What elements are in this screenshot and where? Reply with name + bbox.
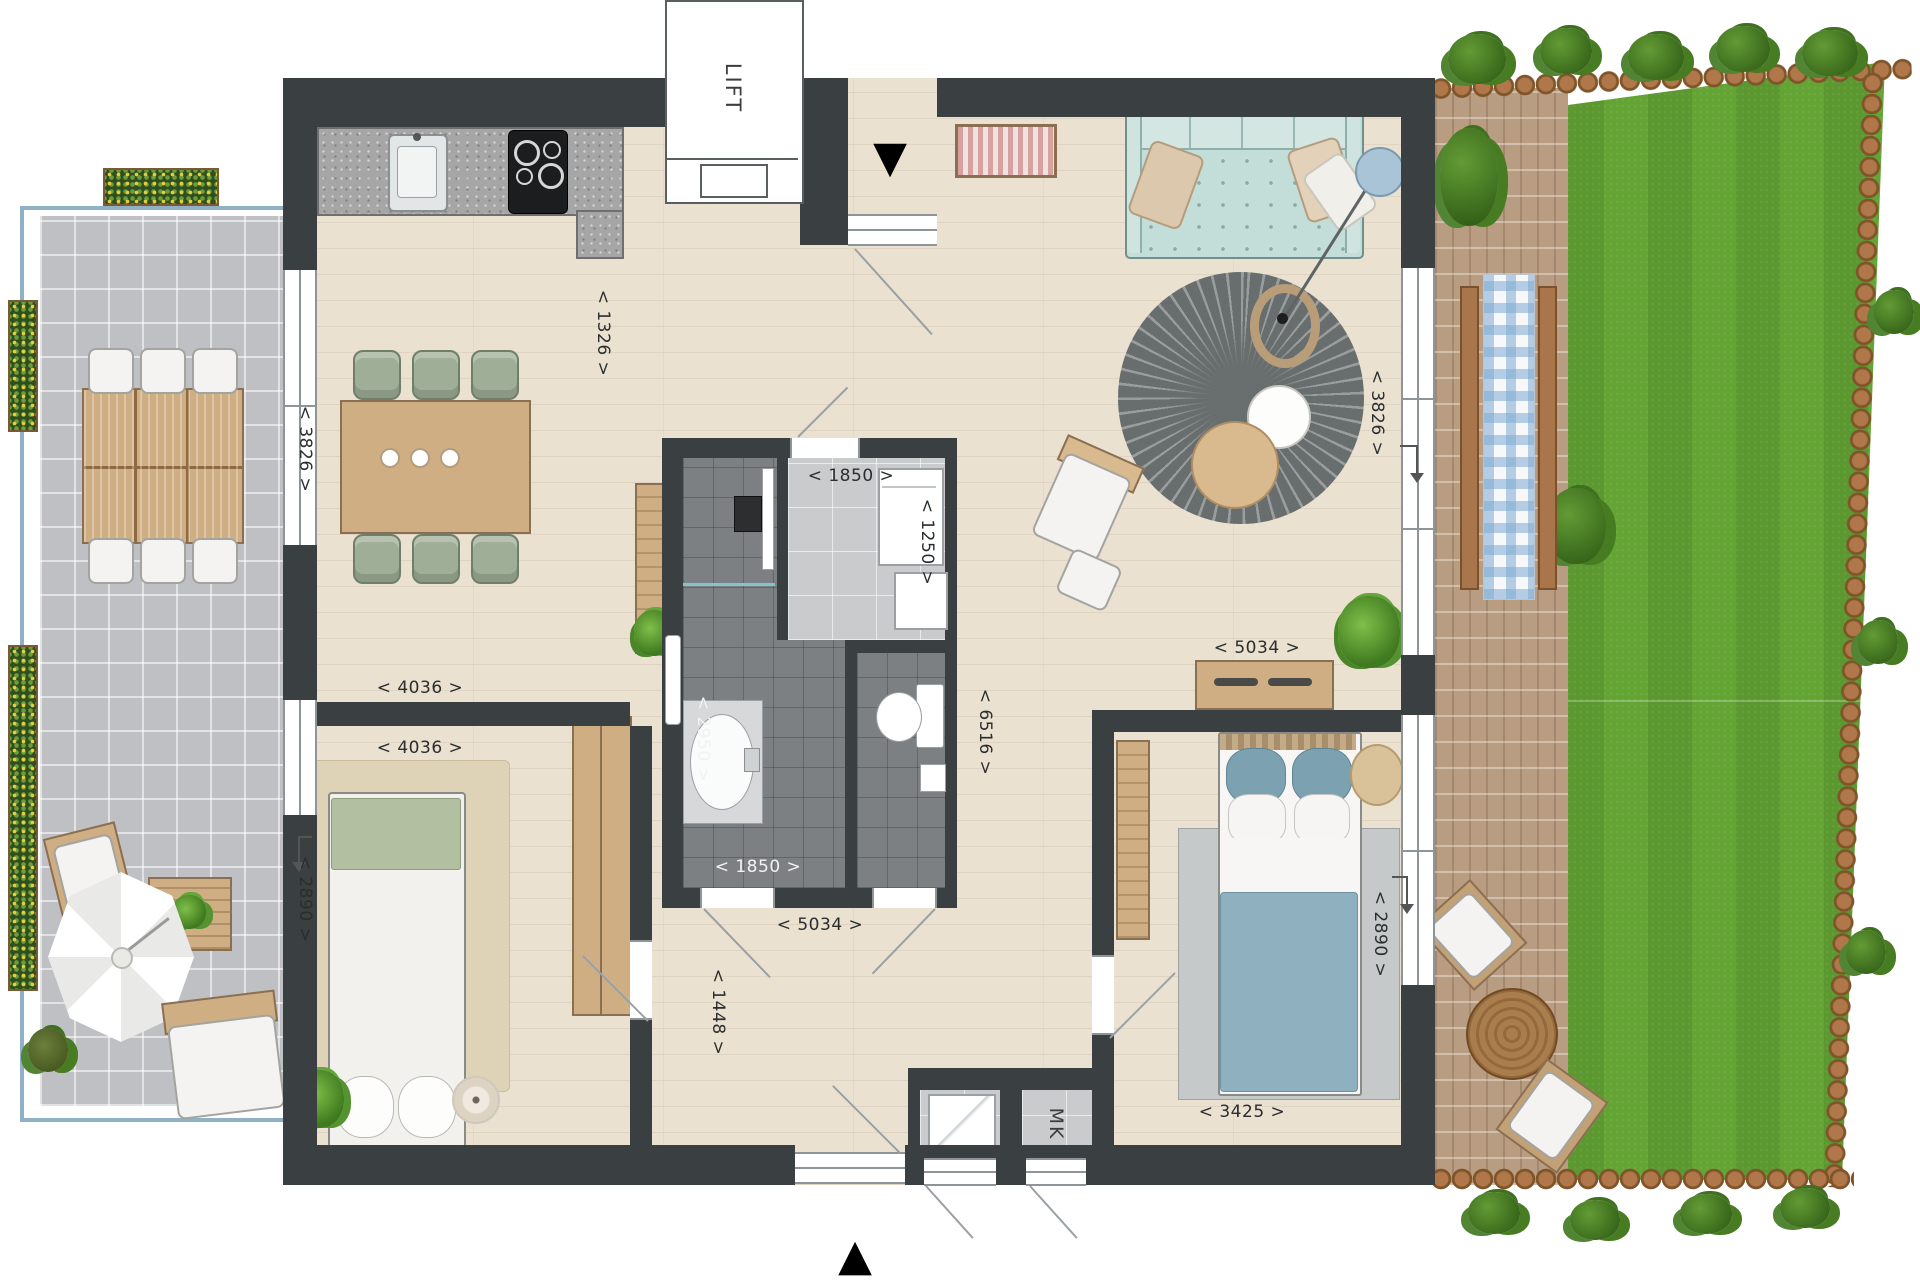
wall-right [1401, 655, 1435, 715]
garden-bush [1858, 620, 1898, 664]
bedroom2-door-opening [1092, 955, 1114, 1035]
door-swing [1029, 1185, 1077, 1238]
garden-bush [1802, 30, 1858, 76]
bed2-duvet [1220, 892, 1358, 1092]
mk-door-sill [1026, 1158, 1086, 1186]
boiler-line [882, 486, 936, 488]
vanity-faucet [744, 748, 760, 772]
access-arrow [1406, 876, 1408, 906]
wall-segment [777, 458, 788, 640]
kitchen-counter [317, 127, 624, 216]
wall-segment [845, 653, 857, 888]
living-plant [1338, 596, 1400, 668]
burner [514, 140, 540, 166]
garden-bush [1468, 1192, 1520, 1234]
kitchen-counter-return [576, 210, 624, 259]
dining-table-top [340, 400, 531, 534]
wall-entry-block [800, 78, 848, 245]
wall-divider-dining-bed1 [300, 702, 630, 726]
bed2-sheet-fold [1220, 838, 1356, 898]
mk-label: MK [1045, 1108, 1067, 1141]
entry-door-threshold-bottom [795, 1152, 905, 1184]
lawn-seam [1568, 700, 1868, 702]
wall-top-living [937, 78, 1435, 117]
dimension-hall-width: < 5034 > [777, 915, 864, 935]
log-border-bottom [1430, 1168, 1854, 1190]
dining-chair [471, 350, 519, 400]
wc-hand-basin [920, 764, 946, 792]
console-radiator [955, 124, 1057, 178]
bedroom2-pouf [1350, 744, 1404, 806]
dimension-bedroom2-height: < 2890 > [1370, 891, 1390, 978]
dining-chair [471, 534, 519, 584]
wc-door-opening [872, 888, 937, 908]
garden-bush [1570, 1200, 1620, 1240]
garden-bush [1448, 34, 1506, 84]
floor-plan: LIFT MK ▼ ▲ < 1326 > < 3826 > < 4036 > <… [0, 0, 1920, 1280]
door-swing [925, 1185, 973, 1238]
burner [516, 168, 533, 185]
shower-head [734, 496, 762, 532]
decor-ring [1250, 284, 1320, 368]
terrace-chair [88, 538, 134, 584]
dining-chair [353, 534, 401, 584]
dining-chair [412, 350, 460, 400]
dimension-living-left: < 3826 > [295, 406, 315, 493]
wall-left [283, 545, 317, 702]
dimension-bedroom2-width: < 5034 > [1214, 638, 1301, 658]
wall-segment [908, 1068, 1100, 1090]
shower-panel [762, 468, 774, 570]
entry-door-threshold-top [848, 214, 937, 246]
picnic-bench-right [1538, 286, 1557, 590]
garden-bush [1780, 1188, 1830, 1228]
terrace-chair [88, 348, 134, 394]
wall-bed2-left [1092, 1035, 1114, 1145]
side-table-wood [1191, 421, 1279, 509]
bed2-headboard [1220, 734, 1356, 750]
window-mullion [1401, 398, 1435, 400]
wall-segment [775, 888, 872, 908]
towel-radiator [665, 635, 681, 725]
flower-box-top [103, 168, 219, 206]
flower-box-left-lower [8, 645, 38, 991]
window [283, 700, 317, 815]
entry-arrow-top-icon: ▼ [873, 136, 907, 180]
wall-divider-living-bed2 [1092, 710, 1435, 732]
flower-box-left-upper [8, 300, 38, 432]
dimension-storage-width: < 1850 > [808, 466, 895, 486]
lift-label: LIFT [721, 63, 745, 113]
access-arrowhead [1410, 473, 1424, 490]
bedroom1-wardrobe [572, 716, 632, 1016]
terrace-railing-bottom [20, 1118, 283, 1122]
bed2-pillow-white [1294, 794, 1350, 844]
bedroom2-closet [1116, 740, 1150, 940]
access-arrowhead [1400, 904, 1414, 921]
garden-bush [1680, 1194, 1732, 1234]
bed2-pillow-white [1228, 794, 1286, 844]
window-mullion [1401, 850, 1435, 852]
techroom-door-opening [790, 438, 860, 458]
garden-bush [1874, 290, 1914, 334]
kitchen-faucet [413, 133, 421, 141]
lift-door [700, 164, 768, 198]
terrace-railing-top [20, 206, 283, 210]
terrace-shrub [28, 1028, 68, 1072]
dimension-corridor-length: < 6516 > [975, 689, 995, 776]
dresser-handle [1268, 678, 1312, 686]
bed1-throw [331, 798, 461, 870]
wall-bed2-left [1092, 732, 1114, 955]
terrace-chair [192, 348, 238, 394]
burner [538, 163, 564, 189]
window [1401, 268, 1435, 655]
dimension-living-right: < 3826 > [1367, 370, 1387, 457]
bedroom1-pouf [452, 1076, 500, 1124]
shower-glass [683, 583, 775, 586]
wall-bottom [283, 1145, 795, 1185]
wall-segment [945, 438, 957, 908]
terrace-chair [140, 348, 186, 394]
table-runner-plate [410, 448, 430, 468]
parasol-cap [111, 947, 133, 969]
access-arrow [298, 836, 312, 838]
garden-bush [1716, 26, 1770, 72]
entry-arrow-bottom-icon: ▲ [838, 1234, 872, 1278]
wall-segment [937, 888, 957, 908]
terrace-table [82, 388, 244, 544]
window-mullion [1401, 528, 1435, 530]
bed1-pillow [336, 1076, 394, 1138]
garden-bush [1540, 28, 1592, 74]
burner [543, 141, 561, 159]
path-bush-top [1440, 128, 1498, 226]
bathroom-door-opening [700, 888, 775, 908]
terrace-chair [140, 538, 186, 584]
dimension-bedroom1-height: < 2890 > [295, 856, 315, 943]
dimension-storage-height: < 1250 > [917, 499, 937, 586]
kitchen-sink-basin [397, 146, 437, 198]
toilet-bowl [876, 692, 922, 742]
lamp-hub [1277, 313, 1288, 324]
garden-bush [1846, 930, 1886, 974]
picnic-table-cloth [1483, 274, 1535, 600]
lift-inner-line [667, 158, 798, 160]
wall-segment [662, 888, 700, 908]
garden-bush [1628, 34, 1684, 80]
picnic-bench-left [1460, 286, 1479, 590]
dimension-bathroom-width: < 1850 > [715, 857, 802, 877]
terrace-lounge-sofa [161, 990, 289, 1123]
wall-bed1-right [630, 1020, 652, 1145]
dimension-bedroom2-bottom: < 3425 > [1199, 1102, 1286, 1122]
dresser-handle [1214, 678, 1258, 686]
dining-chair [412, 534, 460, 584]
dimension-bathroom-height: < 2950 > [693, 696, 713, 783]
floor-lamp-shade [1355, 147, 1405, 197]
wall-right [1401, 78, 1435, 268]
dimension-hall-height: < 1448 > [708, 969, 728, 1056]
dimension-kitchen-passage: < 1326 > [593, 290, 613, 377]
dimension-dining-width: < 4036 > [377, 678, 464, 698]
access-arrow [1416, 445, 1418, 475]
table-runner-plate [380, 448, 400, 468]
dining-chair [353, 350, 401, 400]
storage-door-sill [924, 1158, 996, 1186]
wall-top-kitchen [283, 78, 665, 127]
table-runner-plate [440, 448, 460, 468]
wall-bed1-right [630, 726, 652, 940]
dimension-bedroom1-width: < 4036 > [377, 738, 464, 758]
bed1-pillow [398, 1076, 456, 1138]
terrace-chair [192, 538, 238, 584]
